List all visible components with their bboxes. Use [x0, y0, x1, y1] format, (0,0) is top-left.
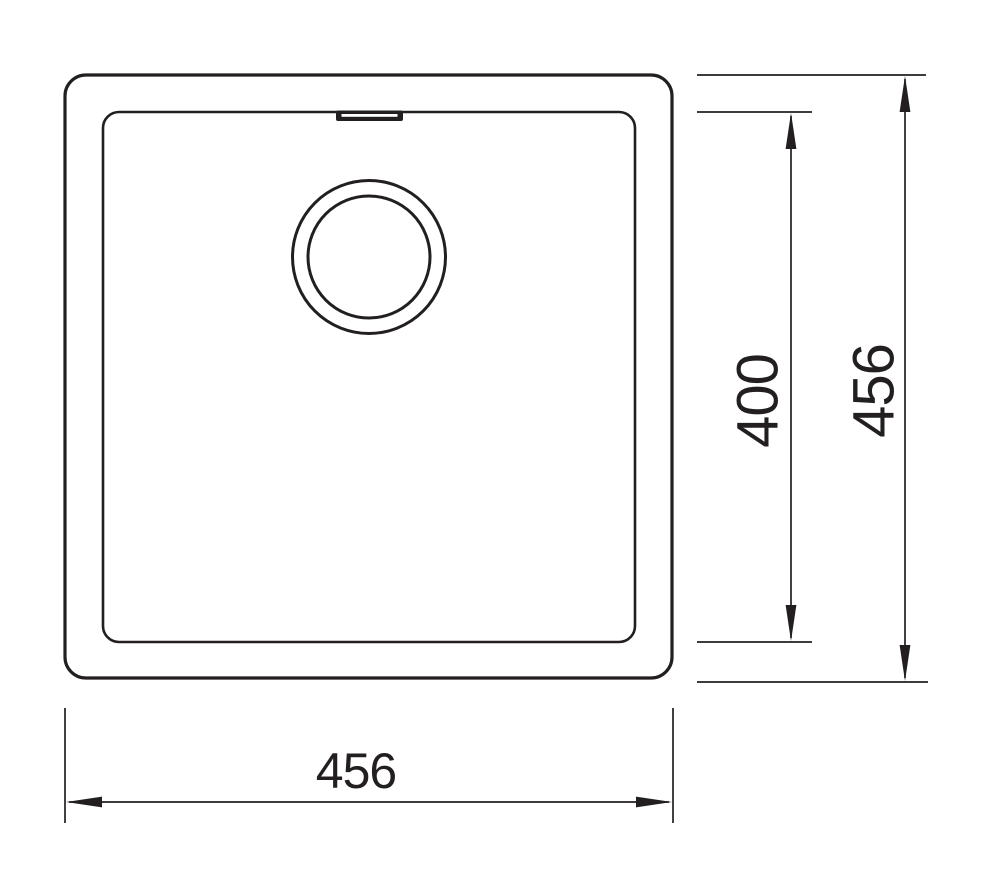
drain-outer-circle — [293, 181, 446, 334]
overall-width-label: 456 — [316, 743, 396, 799]
overflow-slot-icon — [336, 111, 403, 122]
sink-bowl-edge — [103, 112, 635, 642]
arrowhead-right-icon — [636, 797, 672, 808]
sink-outer-rim — [65, 75, 672, 678]
diagram-canvas: 400 456 45 — [0, 0, 992, 896]
arrowhead-left-icon — [66, 797, 102, 808]
overall-depth-label: 456 — [841, 344, 906, 438]
arrowhead-down-icon — [900, 645, 911, 681]
arrowhead-up-icon — [786, 113, 797, 149]
dimension-bowl-depth: 400 — [697, 112, 812, 642]
sink-dimension-diagram: 400 456 45 — [0, 0, 992, 896]
drain-inner-circle — [308, 196, 430, 318]
bowl-depth-label: 400 — [725, 354, 790, 448]
arrowhead-up-icon — [900, 76, 911, 112]
dimension-overall-width: 456 — [65, 708, 673, 823]
arrowhead-down-icon — [786, 605, 797, 641]
